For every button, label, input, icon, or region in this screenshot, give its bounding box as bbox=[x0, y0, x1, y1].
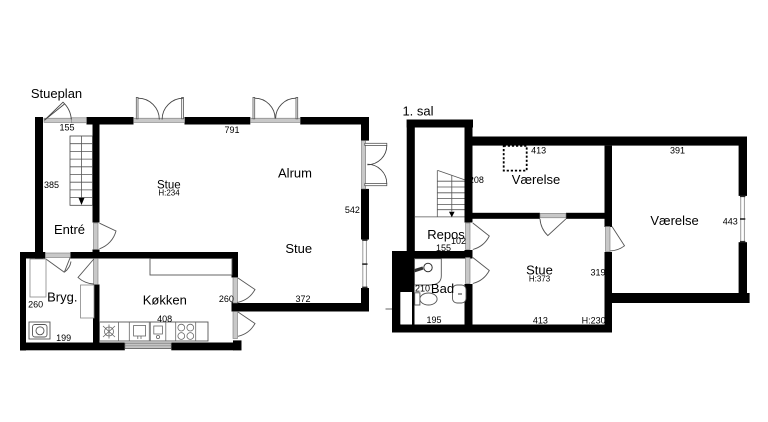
svg-text:Værelse: Værelse bbox=[650, 213, 698, 228]
svg-text:208: 208 bbox=[469, 175, 484, 185]
svg-text:155: 155 bbox=[436, 243, 451, 253]
svg-text:H:230: H:230 bbox=[582, 316, 606, 326]
svg-text:155: 155 bbox=[59, 123, 74, 133]
svg-text:791: 791 bbox=[224, 125, 239, 135]
svg-text:260: 260 bbox=[219, 294, 234, 304]
svg-text:199: 199 bbox=[56, 333, 71, 343]
svg-text:Bad: Bad bbox=[431, 281, 454, 296]
svg-text:Alrum: Alrum bbox=[278, 166, 312, 181]
svg-text:Stueplan: Stueplan bbox=[31, 86, 82, 101]
svg-text:319: 319 bbox=[590, 268, 605, 278]
svg-text:391: 391 bbox=[670, 146, 685, 156]
svg-text:Bryg.: Bryg. bbox=[47, 290, 77, 305]
svg-text:542: 542 bbox=[345, 205, 360, 215]
svg-text:H:234: H:234 bbox=[158, 189, 180, 198]
svg-text:H:373: H:373 bbox=[529, 274, 551, 283]
svg-text:413: 413 bbox=[531, 145, 546, 155]
svg-text:372: 372 bbox=[295, 294, 310, 304]
svg-text:Værelse: Værelse bbox=[512, 172, 560, 187]
svg-text:443: 443 bbox=[723, 216, 738, 226]
svg-text:210: 210 bbox=[415, 283, 430, 293]
svg-text:413: 413 bbox=[533, 316, 548, 326]
svg-text:102: 102 bbox=[451, 236, 466, 246]
svg-text:260: 260 bbox=[28, 299, 43, 309]
svg-text:408: 408 bbox=[157, 314, 172, 324]
svg-text:Køkken: Køkken bbox=[143, 292, 187, 307]
svg-text:385: 385 bbox=[44, 180, 59, 190]
svg-text:Stue: Stue bbox=[285, 241, 312, 256]
svg-text:195: 195 bbox=[426, 315, 441, 325]
svg-text:Entré: Entré bbox=[54, 222, 85, 237]
svg-text:1. sal: 1. sal bbox=[402, 104, 433, 119]
